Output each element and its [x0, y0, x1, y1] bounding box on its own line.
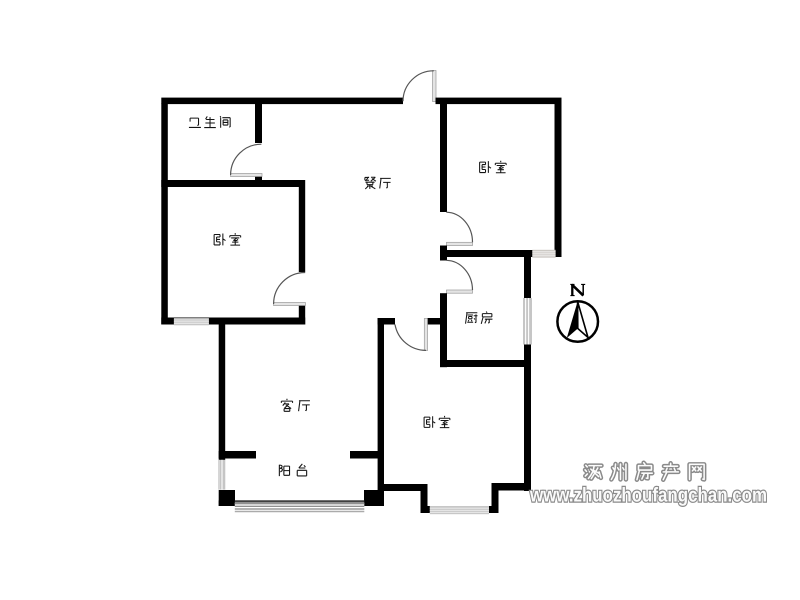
- svg-text:www.zhuozhoufangchan.com: www.zhuozhoufangchan.com: [529, 485, 767, 507]
